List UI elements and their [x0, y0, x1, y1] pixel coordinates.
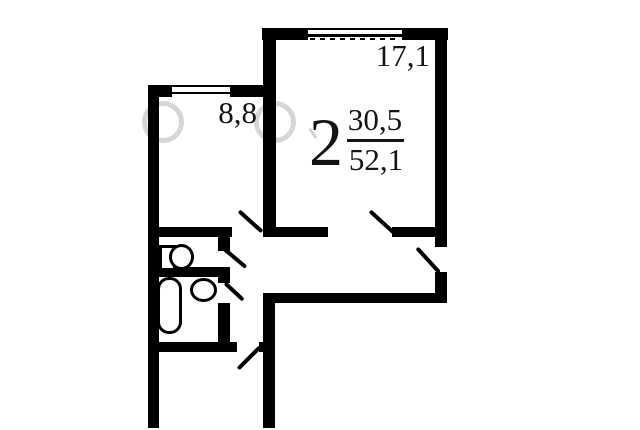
- entrance-door-icon: [416, 247, 441, 274]
- living-room-door-icon: [369, 210, 396, 235]
- toilet-icon: [169, 244, 194, 270]
- wall-corridor-top-mid: [263, 227, 328, 237]
- watermark: [142, 101, 184, 143]
- sink-icon: [190, 278, 217, 302]
- wall-kitchen-top-left: [148, 342, 237, 352]
- wall-living-right: [435, 28, 447, 247]
- wall-entrance-stub: [435, 272, 447, 303]
- wall-bedroom-bottom: [148, 227, 232, 237]
- bedroom-area-label: 8,8: [197, 97, 257, 128]
- bathtub-icon: [157, 277, 182, 334]
- wc-door-icon: [222, 246, 248, 268]
- kitchen-door-icon: [237, 346, 262, 371]
- bedroom-door-icon: [238, 210, 264, 234]
- watermark: [254, 101, 296, 143]
- total-area-label: 52,1: [346, 144, 406, 175]
- living-room-area-label: 17,1: [350, 40, 430, 71]
- bathroom-door-icon: [224, 282, 245, 302]
- wall-corridor-top-right: [392, 227, 447, 237]
- living-area-total-label: 30,5: [345, 104, 405, 135]
- wall-corridor-bottom: [263, 293, 447, 303]
- floor-plan: 17,1 8,8 2 30,5 52,1: [0, 0, 640, 430]
- wall-bath-right-upper: [218, 267, 230, 283]
- rooms-count-label: 2: [306, 108, 346, 176]
- wall-kitchen-right: [263, 303, 275, 428]
